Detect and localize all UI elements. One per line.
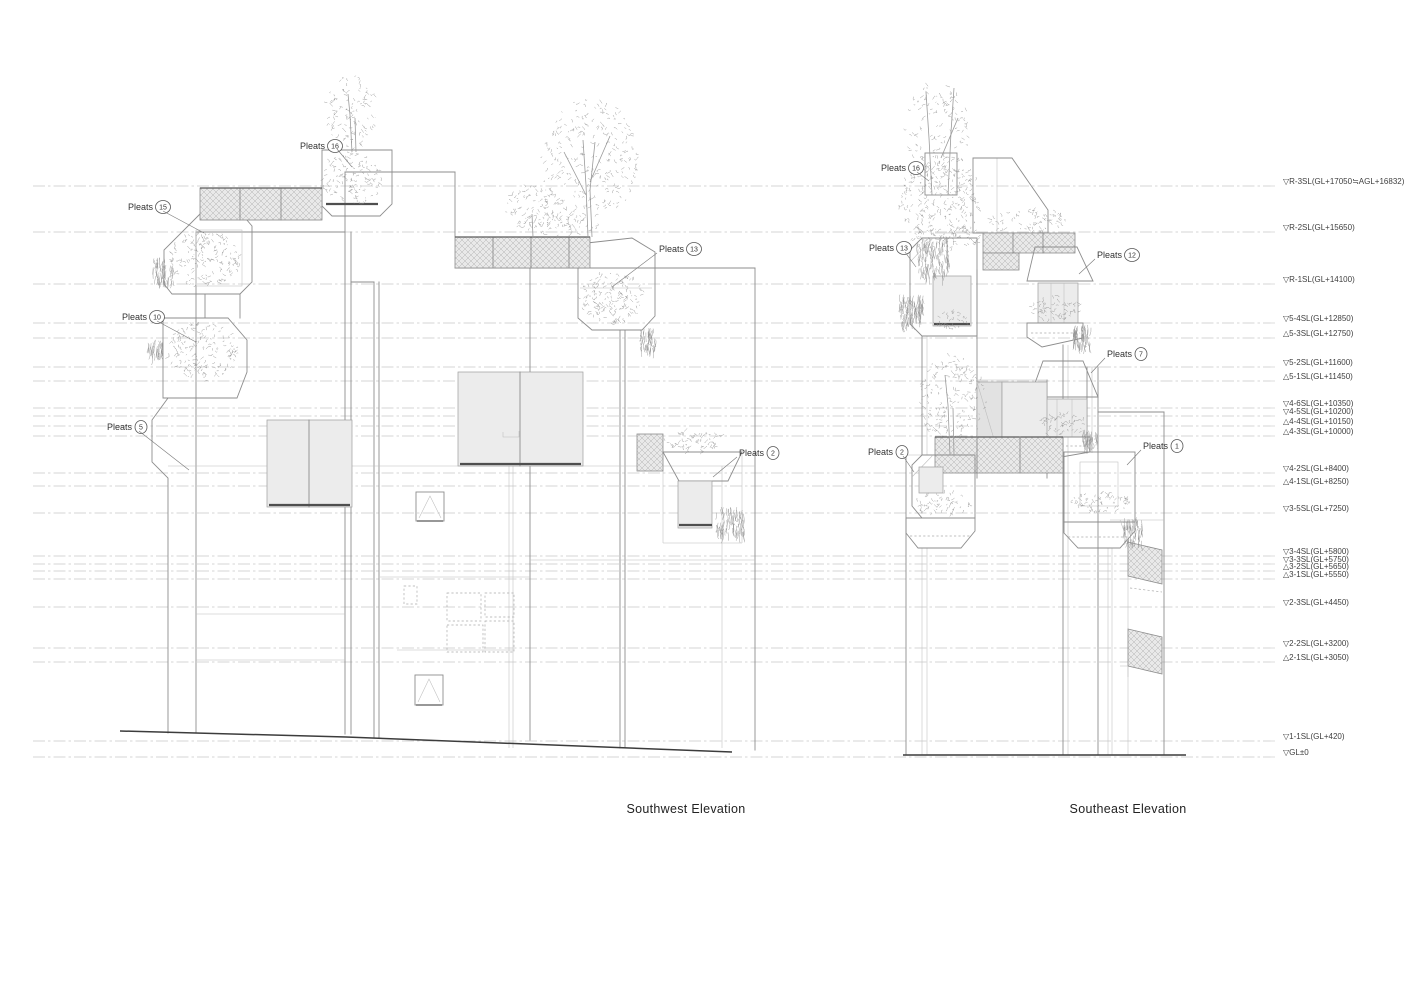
pleats-label: Pleats16 — [300, 140, 352, 168]
pleats-number: 5 — [139, 425, 143, 432]
level-label: ▽4-5SL(GL+10200) — [1283, 407, 1354, 416]
pleats-leader-line — [903, 456, 914, 472]
level-label: ▽GL±0 — [1283, 748, 1309, 757]
foliage-hanging — [899, 295, 924, 333]
pleats-label-text: Pleats — [659, 244, 685, 254]
pleats-number: 13 — [900, 246, 908, 253]
foliage-hanging — [153, 258, 175, 289]
level-label: ▽1-1SL(GL+420) — [1283, 732, 1345, 741]
tree-trunk — [564, 152, 586, 195]
ground-line — [120, 731, 732, 752]
pleats-leader-line — [1079, 259, 1095, 274]
elevation-drawing-canvas: ▽R-3SL(GL+17050≒AGL+16832)▽R-2SL(GL+1565… — [0, 0, 1415, 1000]
pleats-label-text: Pleats — [739, 448, 765, 458]
pleats-label: Pleats13 — [612, 243, 702, 288]
tree-trunk — [941, 118, 958, 158]
pleats-leader-line — [612, 253, 657, 287]
top-volume — [973, 158, 1048, 233]
pleats-leader-line — [917, 172, 929, 181]
level-label: △2-1SL(GL+3050) — [1283, 653, 1349, 662]
pleats-number: 12 — [1128, 253, 1136, 260]
window — [267, 420, 352, 507]
pleats-number: 2 — [900, 450, 904, 457]
foliage-cluster — [165, 322, 238, 382]
pleats-leader-line — [163, 211, 204, 233]
southeast-title: Southeast Elevation — [1070, 802, 1187, 816]
level-label: ▽2-2SL(GL+3200) — [1283, 639, 1349, 648]
pleats-label: Pleats2 — [868, 446, 914, 473]
pleats-number: 15 — [159, 205, 167, 212]
foliage-cluster — [541, 99, 639, 217]
level-label: ▽5-4SL(GL+12850) — [1283, 314, 1354, 323]
bay-window — [1042, 399, 1087, 437]
foliage-cluster — [917, 490, 972, 517]
bay-window — [678, 481, 712, 528]
level-label: △3-1SL(GL+5550) — [1283, 570, 1349, 579]
pleats-number: 2 — [771, 451, 775, 458]
pleats-label: Pleats7 — [1091, 348, 1147, 374]
pleats-leader-line — [139, 431, 189, 470]
bay-awning — [663, 452, 742, 481]
pleats-label: Pleats10 — [122, 311, 196, 343]
level-label: ▽2-3SL(GL+4450) — [1283, 598, 1349, 607]
pleats-label: Pleats16 — [881, 162, 929, 182]
pleats-number: 1 — [1175, 444, 1179, 451]
window — [458, 372, 583, 466]
drawing-path — [418, 679, 440, 702]
window — [919, 467, 943, 493]
railing-band — [983, 233, 1075, 253]
foliage-cluster — [321, 152, 382, 204]
southwest-title: Southwest Elevation — [627, 802, 746, 816]
pleats-label-text: Pleats — [868, 447, 894, 457]
level-label: △5-3SL(GL+12750) — [1283, 329, 1354, 338]
level-lines-layer: ▽R-3SL(GL+17050≒AGL+16832)▽R-2SL(GL+1565… — [33, 177, 1405, 757]
pleats-label-text: Pleats — [1107, 349, 1133, 359]
pleats-label-text: Pleats — [1097, 250, 1123, 260]
pleats-leader-line — [905, 252, 916, 267]
drawing-sheet: ▽R-3SL(GL+17050≒AGL+16832)▽R-2SL(GL+1565… — [0, 0, 1415, 1000]
hidden-element — [404, 586, 417, 604]
pleats-label: Pleats15 — [128, 201, 204, 234]
pleats-leader-line — [713, 457, 737, 477]
foliage-hanging — [716, 507, 745, 543]
drawing-line — [1130, 588, 1162, 592]
level-label: ▽R-3SL(GL+17050≒AGL+16832) — [1283, 177, 1405, 186]
hidden-element — [485, 621, 514, 652]
pleats-label-text: Pleats — [300, 141, 326, 151]
level-label: ▽R-1SL(GL+14100) — [1283, 275, 1355, 284]
railing-band — [455, 237, 590, 268]
foliage-cluster — [578, 272, 644, 324]
level-label: △4-3SL(GL+10000) — [1283, 427, 1354, 436]
pleats-label: Pleats5 — [107, 421, 189, 471]
pleats-label-text: Pleats — [128, 202, 154, 212]
pleats-label-text: Pleats — [107, 422, 133, 432]
level-label: ▽4-2SL(GL+8400) — [1283, 464, 1349, 473]
drawing-path — [419, 496, 441, 518]
pleats-label-text: Pleats — [881, 163, 907, 173]
tree-trunk — [590, 142, 595, 237]
pleat5-profile — [152, 398, 168, 733]
pleats-label-text: Pleats — [122, 312, 148, 322]
pleats-number: 16 — [912, 166, 920, 173]
level-label: △4-1SL(GL+8250) — [1283, 477, 1349, 486]
pleats2-planter — [906, 518, 975, 548]
planter-10 — [163, 318, 247, 398]
pleats-label-text: Pleats — [869, 243, 895, 253]
bay-screen — [637, 434, 663, 471]
foliage-hanging — [639, 328, 656, 358]
railing-band — [200, 188, 322, 220]
stair-flight — [1128, 542, 1162, 584]
planter-15 — [164, 212, 252, 294]
door-panel — [1002, 382, 1047, 437]
foliage-cluster — [1071, 491, 1130, 513]
foliage-cluster — [169, 231, 241, 287]
level-label: ▽R-2SL(GL+15650) — [1283, 223, 1355, 232]
tree-trunk — [532, 214, 533, 237]
foliage-cluster — [919, 353, 986, 441]
drawing-path — [1120, 666, 1128, 677]
stair-flight — [1128, 629, 1162, 674]
level-label: △4-4SL(GL+10150) — [1283, 417, 1354, 426]
pleats-label-text: Pleats — [1143, 441, 1169, 451]
pleats-number: 13 — [690, 247, 698, 254]
level-label: ▽3-5SL(GL+7250) — [1283, 504, 1349, 513]
hidden-element — [485, 593, 514, 617]
drawing-path — [910, 238, 933, 262]
pleats-number: 7 — [1139, 352, 1143, 359]
foliage-cluster — [664, 428, 724, 454]
foliage-hanging — [147, 340, 163, 365]
level-label: ▽5-2SL(GL+11600) — [1283, 358, 1353, 367]
foliage-hanging — [1073, 325, 1091, 354]
level-label: △5-1SL(GL+11450) — [1283, 372, 1353, 381]
window — [933, 276, 971, 326]
pleats-number: 10 — [153, 315, 161, 322]
pleats-label: Pleats2 — [713, 447, 779, 478]
railing-band — [983, 253, 1019, 270]
pleats-label: Pleats13 — [869, 242, 916, 268]
planter-16 — [322, 150, 392, 216]
